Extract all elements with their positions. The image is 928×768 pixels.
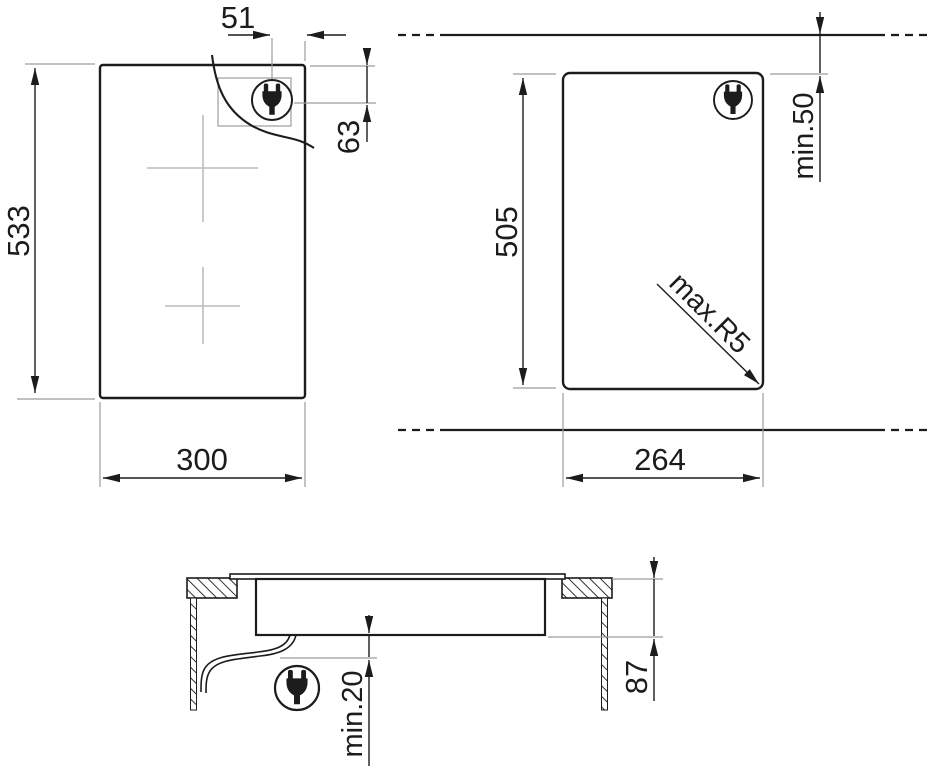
power-plug-icon (252, 80, 292, 120)
dim-label-264: 264 (634, 442, 686, 477)
power-plug-icon (714, 81, 752, 119)
drawing-canvas: 533 300 51 63 (0, 0, 928, 768)
power-plug-icon (275, 666, 319, 710)
dim-width-300: 300 (100, 402, 305, 487)
dim-label-533: 533 (1, 205, 36, 257)
dim-label-min20: min.20 (337, 670, 369, 757)
worktop-section-left (187, 578, 237, 598)
installation-drawing: 533 300 51 63 (0, 0, 928, 768)
dim-label-300: 300 (176, 442, 228, 477)
section-view: min.20 87 (187, 557, 663, 766)
top-view: 533 300 51 63 (1, 0, 376, 487)
dim-height-533: 533 (1, 64, 95, 399)
dim-plug-offset-63: 63 (294, 49, 376, 154)
dim-label-87: 87 (619, 660, 654, 694)
cutout-view: 505 264 min.50 max.R5 (398, 12, 928, 487)
dim-wall-clearance-min50: min.50 (770, 12, 828, 182)
cabinet-wall-left (191, 598, 197, 710)
dim-cutout-width-264: 264 (563, 393, 763, 487)
cabinet-wall-right (602, 598, 608, 710)
worktop-section-right (562, 578, 612, 598)
dim-label-51: 51 (221, 0, 255, 35)
dim-label-505: 505 (489, 206, 524, 258)
dim-cutout-height-505: 505 (489, 74, 556, 388)
dim-label-min50: min.50 (788, 92, 820, 179)
hob-body (256, 579, 545, 635)
dim-label-63: 63 (331, 120, 366, 154)
